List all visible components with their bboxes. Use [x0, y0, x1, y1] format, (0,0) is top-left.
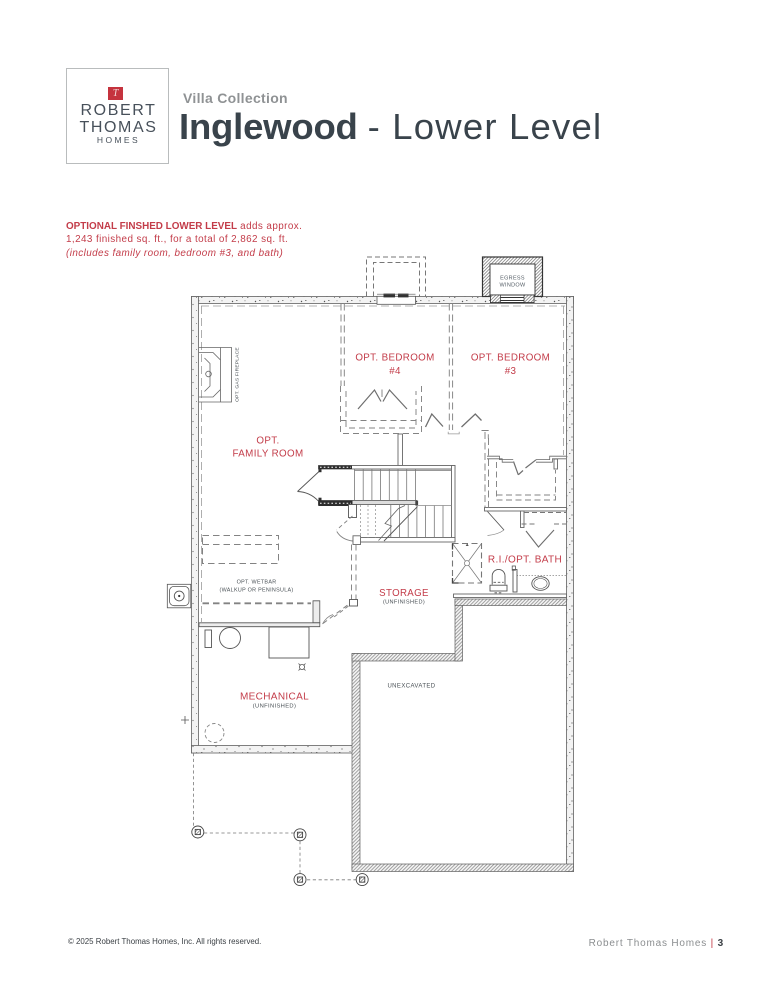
svg-text:OPT. GAS FIREPLACE: OPT. GAS FIREPLACE: [235, 347, 241, 402]
svg-text:OPT. BEDROOM: OPT. BEDROOM: [355, 353, 434, 364]
svg-text:OPT. BEDROOM: OPT. BEDROOM: [471, 353, 550, 364]
svg-text:#4: #4: [389, 366, 401, 377]
svg-text:OPT. WETBAR: OPT. WETBAR: [237, 580, 277, 586]
svg-text:WINDOW: WINDOW: [500, 283, 526, 289]
svg-text:OPT.: OPT.: [256, 436, 279, 447]
svg-text:(WALKUP OR PENINSULA): (WALKUP OR PENINSULA): [220, 588, 294, 594]
svg-text:FAMILY ROOM: FAMILY ROOM: [233, 449, 304, 460]
svg-text:#3: #3: [505, 366, 517, 377]
svg-text:(UNFINISHED): (UNFINISHED): [383, 599, 425, 605]
svg-text:UNEXCAVATED: UNEXCAVATED: [387, 684, 435, 690]
svg-text:(UNFINISHED): (UNFINISHED): [253, 704, 297, 710]
svg-text:R.I./OPT. BATH: R.I./OPT. BATH: [488, 555, 562, 566]
svg-text:MECHANICAL: MECHANICAL: [240, 692, 309, 703]
svg-text:STORAGE: STORAGE: [379, 588, 429, 599]
svg-text:EGRESS: EGRESS: [500, 276, 525, 282]
